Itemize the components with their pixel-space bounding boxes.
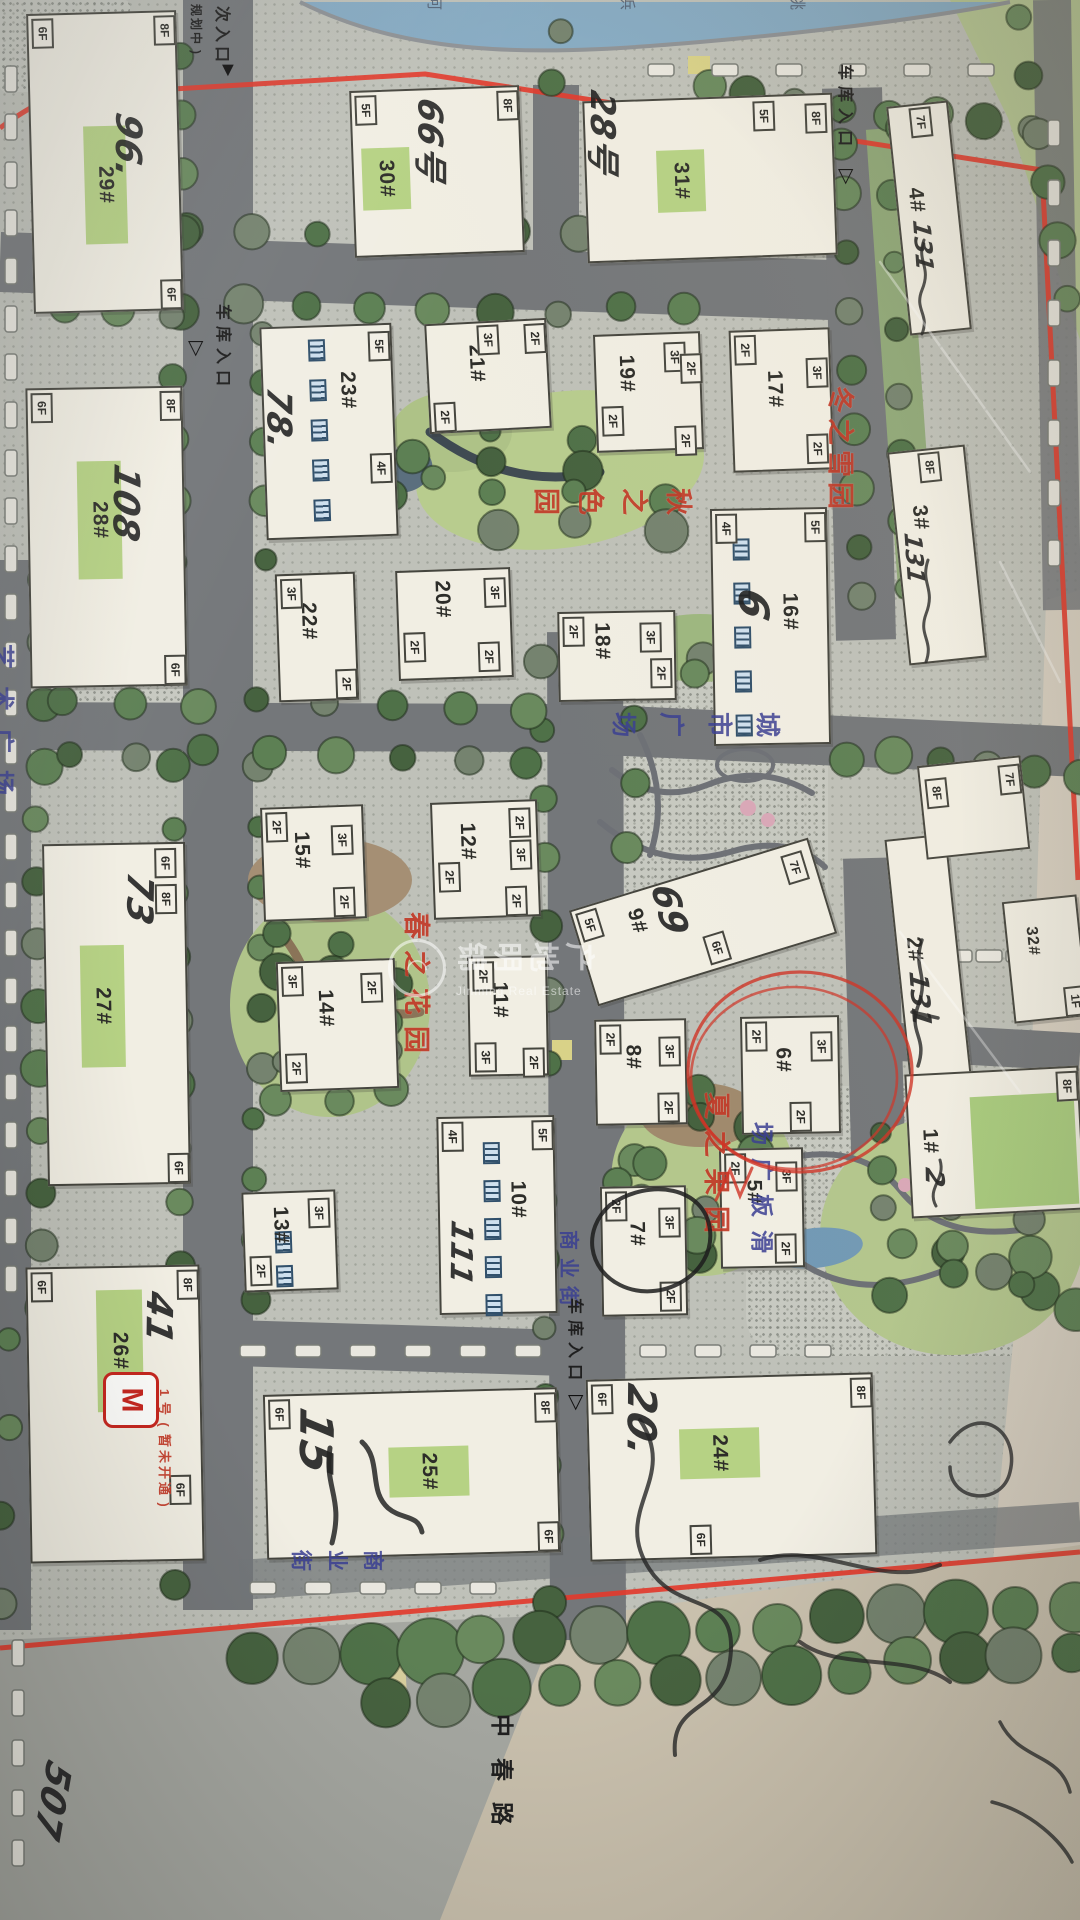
handwritten-annotation: 2 [919, 1165, 949, 1189]
handwritten-annotation: 131 [907, 219, 939, 273]
floor-label: 3F [775, 1161, 798, 1191]
handwritten-annotation: 73 [118, 869, 160, 929]
floor-label: 2F [674, 425, 697, 456]
floor-label: 2F [599, 1024, 622, 1054]
floor-label: 2F [774, 1233, 797, 1263]
watermark: ◠ 锦明地产 Jinming Real Estate [388, 938, 600, 998]
building-12: 2F3F2F2F12# [430, 799, 541, 920]
floor-label: 6F [167, 1153, 190, 1183]
floor-label: 5F [804, 512, 827, 542]
building-19: 3F2F2F2F19# [593, 331, 704, 453]
handwritten-annotation: 6 [729, 584, 778, 624]
floor-label: 2F [523, 323, 547, 354]
building-number: 2# [901, 936, 928, 964]
building-number: 4# [903, 186, 930, 214]
building-13: 3F2F13# [241, 1189, 338, 1292]
window-icon [483, 1142, 500, 1164]
floor-label: 8F [159, 391, 182, 421]
floor-label: 6F [169, 1475, 192, 1505]
building-number-tag: 27# [80, 945, 126, 1068]
floor-label: 1F [1063, 985, 1080, 1017]
floor-label: 2F [478, 641, 501, 672]
building-number: 32# [1022, 926, 1043, 957]
handwritten-annotation: 28号 [581, 87, 630, 179]
floor-label: 6F [160, 279, 183, 310]
floor-label: 3F [658, 1036, 681, 1066]
building-29: 6F8F6F29#96. [26, 10, 184, 314]
building-21: 3F2F2F21# [424, 318, 552, 434]
window-icon [313, 499, 331, 522]
building-14: 3F2F2F14# [276, 958, 399, 1092]
floor-label: 3F [509, 839, 532, 870]
floor-label: 2F [745, 1021, 768, 1051]
floor-label: 3F [308, 1198, 331, 1229]
building-number: 25# [416, 1452, 441, 1491]
handwritten-annotation: 66号 [408, 94, 457, 186]
building-number: 20# [429, 580, 454, 619]
building-number: 18# [589, 622, 614, 660]
building-number: 3# [907, 504, 934, 532]
floor-label: 8F [176, 1270, 199, 1300]
floor-label: 3F [806, 357, 829, 388]
floor-label: 6F [537, 1521, 560, 1552]
lawn [970, 1092, 1080, 1209]
building-number: 26# [108, 1332, 133, 1370]
building-3: 8F3#131 [887, 445, 987, 666]
floor-label: 6F [268, 1399, 291, 1430]
floor-label: 6F [31, 18, 54, 49]
floor-label: 8F [496, 90, 519, 121]
floor-label: 2F [360, 972, 383, 1003]
building-28: 6F8F6F28#108 [25, 386, 187, 689]
floor-label: 2F [806, 433, 829, 464]
building-25: 6F8F6F25#15 [263, 1387, 561, 1560]
floor-label: 2F [505, 886, 528, 917]
building-number-tag: 24# [679, 1427, 760, 1479]
floor-label: 2F [660, 1281, 683, 1311]
building-number: 8# [621, 1044, 645, 1070]
floor-label: 2F [433, 402, 457, 433]
building-number: 7# [624, 1221, 648, 1247]
window-icon [735, 670, 752, 692]
metro-logo-icon: M [103, 1372, 159, 1428]
floor-label: 3F [281, 966, 304, 997]
floor-label: 3F [639, 622, 662, 652]
floor-label: 2F [657, 1092, 680, 1122]
building-32: 1F32# [1002, 894, 1080, 1023]
floor-label: 5F [531, 1120, 554, 1150]
floor-label: 3F [331, 825, 354, 856]
building-number: 10# [505, 1180, 530, 1218]
floor-label: 3F [658, 1207, 681, 1237]
floor-label: 2F [724, 1153, 747, 1183]
floor-label: 2F [508, 807, 531, 838]
floor-label: 8F [924, 777, 949, 809]
building-number: 24# [707, 1434, 732, 1473]
building-number: 16# [777, 592, 802, 630]
window-icon [484, 1218, 501, 1240]
window-icon [736, 714, 753, 736]
building-number: 31# [668, 162, 693, 201]
building-15: 2F3F2F15# [260, 804, 367, 922]
floor-label: 2F [680, 353, 703, 384]
window-icon [734, 626, 751, 648]
floor-label: 6F [154, 848, 177, 878]
building-24: 6F8F6F24#20. [586, 1372, 878, 1561]
building-number: 15# [289, 831, 314, 870]
building-number: 14# [313, 989, 338, 1028]
window-icon [485, 1294, 502, 1316]
floor-label: 7F [780, 850, 810, 885]
building-number: 13# [268, 1206, 293, 1245]
handwritten-annotation: 131 [898, 531, 930, 585]
building-10: 4F5F10#111 [436, 1115, 557, 1315]
handwritten-annotation: 15 [289, 1404, 343, 1480]
window-icon [483, 1180, 500, 1202]
floor-label: 2F [438, 862, 461, 893]
floor-label: 4F [441, 1122, 464, 1152]
floor-label: 7F [997, 763, 1022, 795]
floor-label: 8F [534, 1392, 557, 1423]
floor-label: 4F [370, 453, 393, 484]
window-icon [485, 1256, 502, 1278]
building-20: 3F2F2F20# [395, 567, 514, 681]
building-30: 5F8F30#66号 [349, 85, 525, 258]
building-8: 2F3F2F8# [594, 1018, 688, 1126]
handwritten-annotation: 96. [107, 109, 148, 182]
building-1: 8F1#2 [904, 1066, 1080, 1219]
building-9: 5F7F6F9#69 [569, 838, 837, 1007]
floor-label: 6F [30, 393, 53, 423]
building-23: 5F4F23#78. [259, 323, 398, 540]
floor-label: 2F [734, 335, 757, 366]
building-16: 4F5F16#6 [710, 507, 831, 746]
floor-label: 3F [476, 324, 500, 355]
floor-label: 2F [789, 1102, 812, 1132]
building-6: 2F3F2F6# [740, 1015, 841, 1135]
floor-label: 2F [601, 406, 624, 437]
floor-label: 6F [164, 655, 187, 685]
window-icon [311, 419, 329, 442]
building-27: 6F8F6F27#73 [42, 842, 191, 1186]
building-number: 6# [771, 1047, 795, 1073]
floor-label: 7F [908, 106, 933, 138]
building-7: 2F3F2F7# [600, 1185, 688, 1316]
building-number-tag: 30# [361, 147, 411, 211]
floor-label: 8F [804, 103, 827, 134]
building-31: 5F8F31#28号 [582, 93, 838, 264]
floor-label: 2F [562, 617, 585, 647]
window-icon [276, 1265, 294, 1288]
handwritten-annotation: 131 [902, 970, 936, 1028]
floor-label: 5F [368, 331, 391, 362]
building-number: 27# [91, 987, 116, 1025]
building-17: 2F3F2F17# [729, 327, 835, 472]
floor-label: 8F [1055, 1071, 1079, 1102]
handwritten-annotation: 78. [259, 384, 299, 453]
building-18: 2F3F2F18# [557, 610, 677, 702]
watermark-logo-icon: ◠ [388, 939, 446, 997]
window-icon [312, 459, 330, 482]
handwritten-annotation: 108 [104, 460, 146, 545]
building-number: 1# [917, 1128, 942, 1155]
building-22: 3F2F22# [275, 572, 359, 703]
handwritten-annotation: 41 [137, 1287, 179, 1347]
floor-label: 2F [335, 669, 358, 700]
handwritten-annotation: 20. [617, 1380, 664, 1461]
watermark-cn: 锦明地产 [456, 938, 600, 982]
floor-label: 2F [333, 887, 356, 918]
floor-label: 2F [285, 1053, 308, 1084]
floor-label: 2F [265, 812, 288, 843]
building-number: 19# [614, 354, 639, 393]
floor-label: 4F [715, 514, 738, 544]
floor-label: 8F [153, 15, 176, 46]
floor-label: 3F [810, 1031, 833, 1061]
floor-label: 8F [917, 451, 942, 483]
floor-label: 2F [403, 632, 426, 663]
handwritten-annotation: 111 [443, 1217, 479, 1288]
floor-label: 3F [483, 577, 506, 608]
floor-label: 5F [752, 101, 775, 132]
building-4: 7F4#131 [886, 100, 972, 335]
floor-label: 2F [523, 1047, 546, 1077]
floor-label: 6F [702, 930, 732, 965]
building-number: 30# [374, 159, 399, 198]
building-number: 12# [455, 822, 480, 861]
window-icon [308, 339, 326, 362]
floor-label: 6F [591, 1384, 614, 1415]
floor-label: 2F [605, 1191, 628, 1221]
floor-label: 5F [354, 95, 377, 126]
building-number: 17# [762, 370, 787, 409]
building-number: 23# [335, 371, 360, 410]
watermark-en: Jinming Real Estate [456, 984, 600, 998]
site-plan-map: 6F8F6F29#96.5F8F30#66号5F8F31#28号7F4#1316… [0, 0, 1080, 1920]
building-number-tag: 25# [388, 1446, 469, 1498]
floor-label: 6F [31, 1272, 54, 1302]
floor-label: 8F [850, 1377, 873, 1408]
floor-label: 2F [250, 1256, 273, 1287]
floor-label: 3F [474, 1042, 497, 1072]
floor-label: 3F [280, 578, 303, 609]
building-5: 2F3F2F5# [719, 1147, 805, 1268]
building-2: 8F7F2#131 [884, 833, 973, 1100]
window-icon [309, 379, 327, 402]
building-number-tag: 31# [656, 149, 706, 213]
floor-label: 2F [650, 658, 673, 688]
floor-label: 6F [690, 1525, 713, 1556]
